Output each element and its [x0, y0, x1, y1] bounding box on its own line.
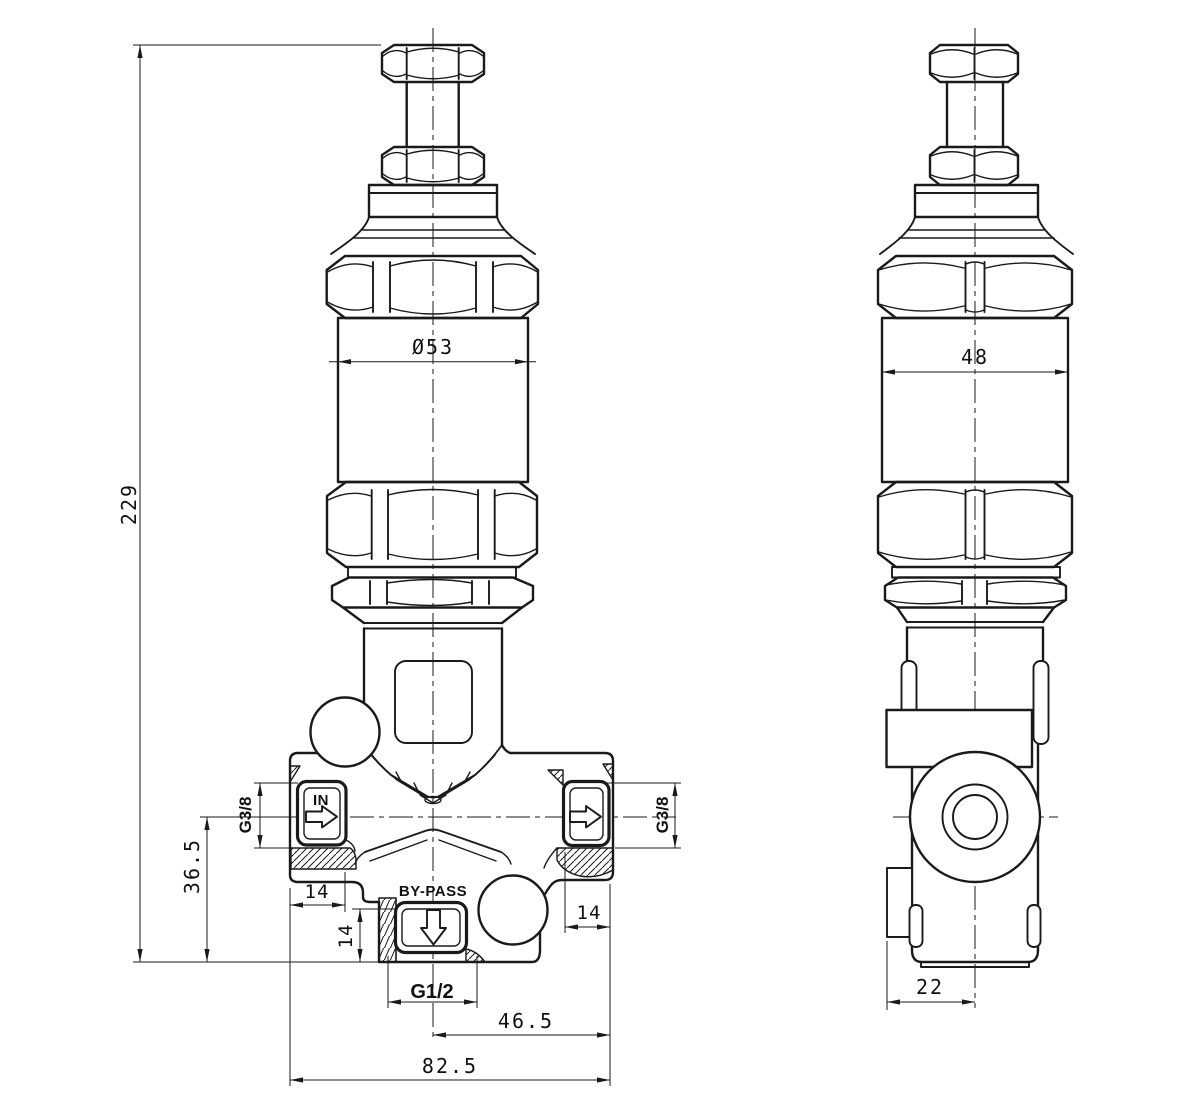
dim-axis-to-right-edge: 46.5 — [498, 1009, 554, 1033]
dim-across-flats: 48 — [961, 345, 989, 369]
bypass-hatch-right — [466, 949, 485, 962]
dim-axis-height: 36.5 — [180, 838, 204, 894]
bypass-label: BY-PASS — [399, 883, 467, 900]
dim-head-diameter: Ø53 — [412, 335, 454, 359]
bypass-port: BY-PASS — [379, 883, 485, 962]
dim-flange-to-axis: 22 — [916, 975, 944, 999]
adjusting-screw-hex-side — [930, 45, 1018, 82]
dim-bypass-depth: 14 — [335, 924, 357, 949]
outlet-port — [544, 770, 613, 877]
bottom-tab-right — [1028, 905, 1041, 947]
dim-inlet-depth: 14 — [305, 881, 330, 903]
inlet-hatch — [291, 848, 356, 869]
dim-overall-height: 229 — [117, 483, 141, 525]
bottom-tab-left — [910, 905, 923, 947]
drawing-canvas: IN BY-PASS 229 — [0, 0, 1200, 1111]
label-outlet-thread: G3/8 — [653, 797, 672, 834]
spring-housing-hex-top — [327, 256, 538, 318]
inlet-label: IN — [313, 792, 329, 809]
edge-hatch-left — [290, 766, 300, 782]
lower-flange-side — [887, 868, 912, 937]
seal-ball-top — [311, 698, 380, 767]
bypass-plug-hatch — [379, 898, 396, 962]
front-view: IN BY-PASS 229 — [117, 28, 681, 1086]
bonnet-cap-side — [880, 185, 1073, 254]
label-bypass-thread: G1/2 — [410, 981, 453, 1003]
spacer-ring-side — [892, 567, 1060, 578]
dim-outlet-depth: 14 — [577, 902, 602, 924]
seal-ball-bottom — [479, 876, 548, 945]
spring-housing-hex-bottom — [327, 482, 537, 567]
inlet-port: IN — [291, 782, 356, 870]
dim-body-width: 82.5 — [422, 1054, 478, 1078]
port-boss-side — [910, 752, 1040, 882]
label-inlet-thread: G3/8 — [236, 797, 255, 834]
lock-nut-side — [930, 147, 1018, 185]
spacer-ring — [348, 567, 516, 578]
side-tab-right — [1034, 661, 1049, 744]
side-view: 48 22 — [878, 28, 1073, 1010]
edge-hatch-right — [603, 764, 613, 780]
technical-drawing-page: IN BY-PASS 229 — [0, 0, 1200, 1111]
